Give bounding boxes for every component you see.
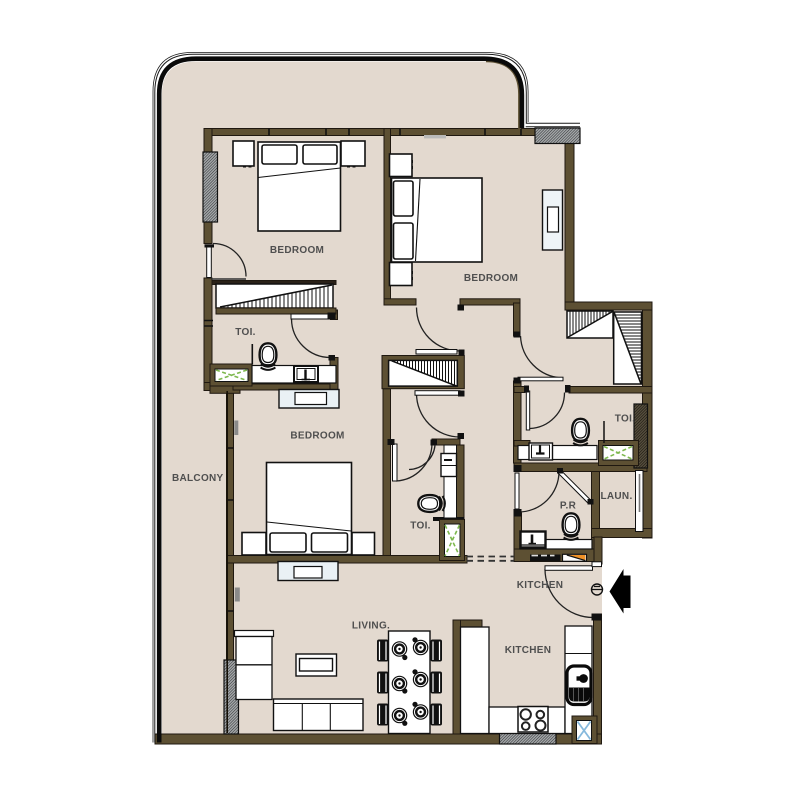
svg-text:BALCONY: BALCONY bbox=[172, 473, 224, 484]
svg-text:BEDROOM: BEDROOM bbox=[464, 273, 518, 284]
svg-text:P.R: P.R bbox=[560, 501, 577, 512]
svg-text:LAUN.: LAUN. bbox=[600, 491, 632, 502]
svg-text:TOI.: TOI. bbox=[615, 414, 635, 425]
svg-text:KITCHEN: KITCHEN bbox=[505, 645, 552, 656]
svg-text:TOI.: TOI. bbox=[235, 327, 255, 338]
svg-text:BEDROOM: BEDROOM bbox=[290, 431, 344, 442]
svg-text:BEDROOM: BEDROOM bbox=[270, 245, 324, 256]
svg-text:KITCHEN: KITCHEN bbox=[517, 580, 564, 591]
svg-text:TOI.: TOI. bbox=[410, 521, 430, 532]
svg-text:LIVING.: LIVING. bbox=[352, 621, 390, 632]
